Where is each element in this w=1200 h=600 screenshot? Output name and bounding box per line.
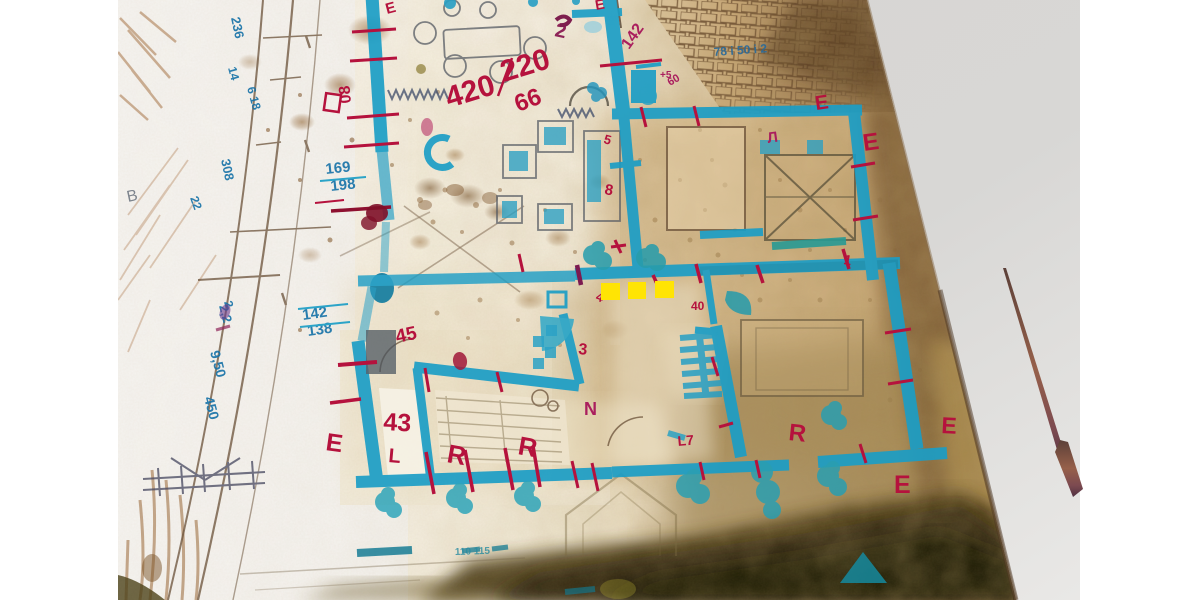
svg-text:N: N: [584, 399, 597, 419]
svg-text:169: 169: [325, 158, 352, 178]
svg-text:40: 40: [691, 299, 705, 313]
svg-text:R: R: [787, 419, 807, 448]
svg-text:110 115: 110 115: [455, 546, 491, 558]
svg-text:L7: L7: [677, 432, 695, 449]
svg-text:E: E: [594, 0, 606, 13]
svg-text:E: E: [941, 412, 958, 439]
svg-text:3: 3: [578, 341, 588, 359]
svg-text:08: 08: [336, 85, 354, 104]
svg-text:L: L: [388, 445, 402, 468]
svg-text:43: 43: [383, 408, 412, 437]
svg-text:138: 138: [306, 320, 333, 340]
svg-text:E: E: [894, 471, 911, 499]
